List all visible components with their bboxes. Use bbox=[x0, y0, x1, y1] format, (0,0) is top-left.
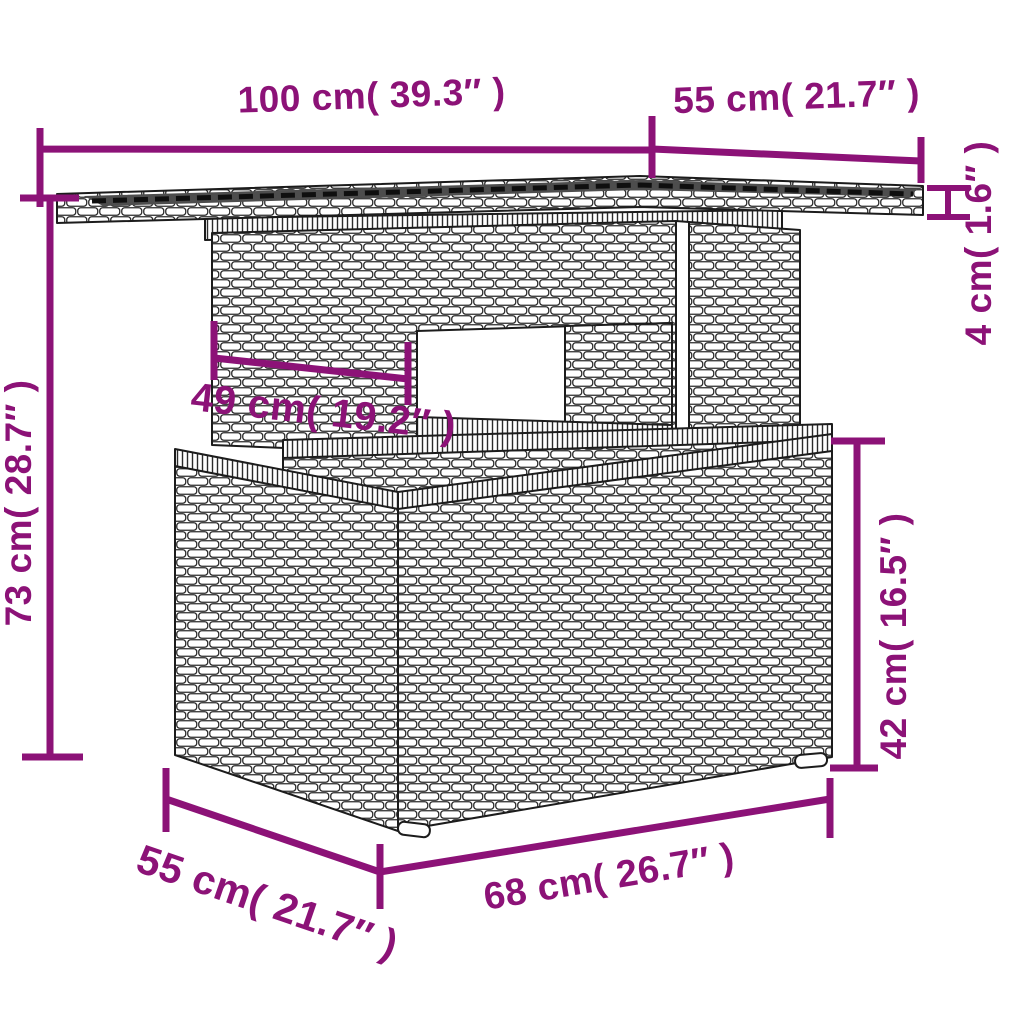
dim-label-base-height: 42 cm( 16.5″ ) bbox=[873, 513, 914, 760]
dim-label-overall-height: 73 cm( 28.7″ ) bbox=[0, 380, 39, 627]
diagram-canvas: 100 cm( 39.3″ ) 55 cm( 21.7″ ) 4 cm( 1.6… bbox=[0, 0, 1024, 1024]
base-left-face bbox=[175, 457, 398, 831]
dimension-diagram: 100 cm( 39.3″ ) 55 cm( 21.7″ ) 4 cm( 1.6… bbox=[0, 0, 1024, 1024]
furniture-illustration bbox=[57, 176, 923, 838]
dim-line-tabletop-depth bbox=[652, 137, 921, 183]
dim-label-tabletop-depth: 55 cm( 21.7″ ) bbox=[672, 72, 920, 122]
dim-label-base-depth: 55 cm( 21.7″ ) bbox=[131, 836, 404, 968]
dim-label-tabletop-thickness: 4 cm( 1.6″ ) bbox=[958, 141, 999, 346]
base-foot-left bbox=[397, 821, 430, 838]
base-foot-right bbox=[795, 753, 828, 769]
pedestal-side bbox=[689, 222, 800, 460]
dim-label-tabletop-length: 100 cm( 39.3″ ) bbox=[237, 70, 506, 120]
